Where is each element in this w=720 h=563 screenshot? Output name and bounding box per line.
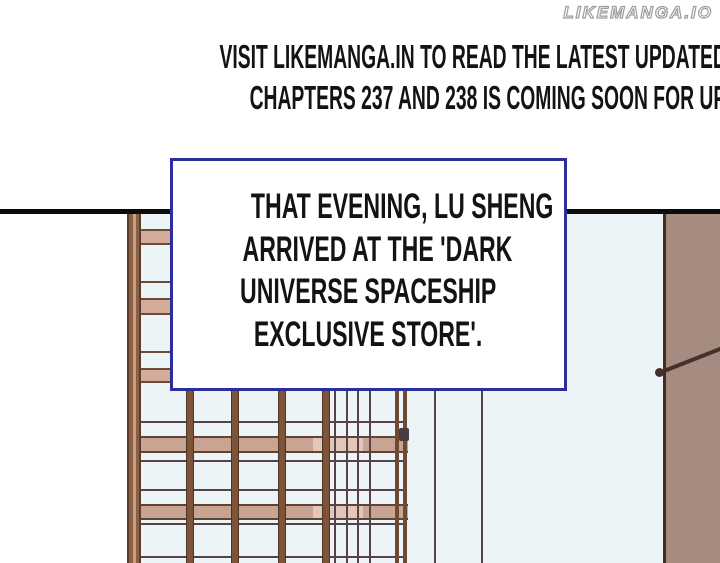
window-line-vertical [481,391,483,563]
window-line-vertical [369,391,371,563]
window-line-vertical [434,391,436,563]
building-post [395,391,399,563]
facade-band [127,504,408,520]
facade-band-highlight [313,438,363,451]
manga-page: LIKEMANGA.IO VISIT LIKEMANGA.IN TO READ … [0,0,720,563]
post-knob [399,428,409,441]
scaffold-rung [141,298,171,315]
window-line-horizontal [141,523,407,525]
building-beam [186,391,194,563]
caption-line-2: ARRIVED AT THE 'DARK [173,229,564,272]
window-line-vertical [357,391,359,563]
scaffold-post [127,214,141,563]
building-beam [278,391,286,563]
building-beam [322,391,330,563]
diagonal-rail-knob [655,368,664,377]
scaffold-rung [141,229,171,245]
window-line-vertical [334,391,336,563]
notice-line-2: CHAPTERS 237 AND 238 IS COMING SOON FOR … [0,79,720,117]
site-watermark: LIKEMANGA.IO [563,3,713,23]
window-line-vertical [346,391,348,563]
building-post [403,391,407,563]
caption-line-3: UNIVERSE SPACESHIP [173,271,564,314]
window-line-horizontal [141,556,407,558]
building-wall [663,213,720,563]
facade-band [127,436,408,453]
window-line-horizontal [141,421,407,423]
caption-line-4: EXCLUSIVE STORE'. [173,314,564,357]
facade-band-highlight [313,506,363,518]
window-line-horizontal [141,489,407,491]
caption-line-1: THAT EVENING, LU SHENG [173,186,564,229]
scaffold-rung-line [141,351,171,353]
building-beam [231,391,239,563]
scaffold-rung-line [141,281,171,283]
notice-line-1: VISIT LIKEMANGA.IN TO READ THE LATEST UP… [0,38,720,76]
scaffold-rung [141,368,171,383]
caption-box: THAT EVENING, LU SHENG ARRIVED AT THE 'D… [170,158,567,391]
window-line-horizontal [141,460,407,462]
